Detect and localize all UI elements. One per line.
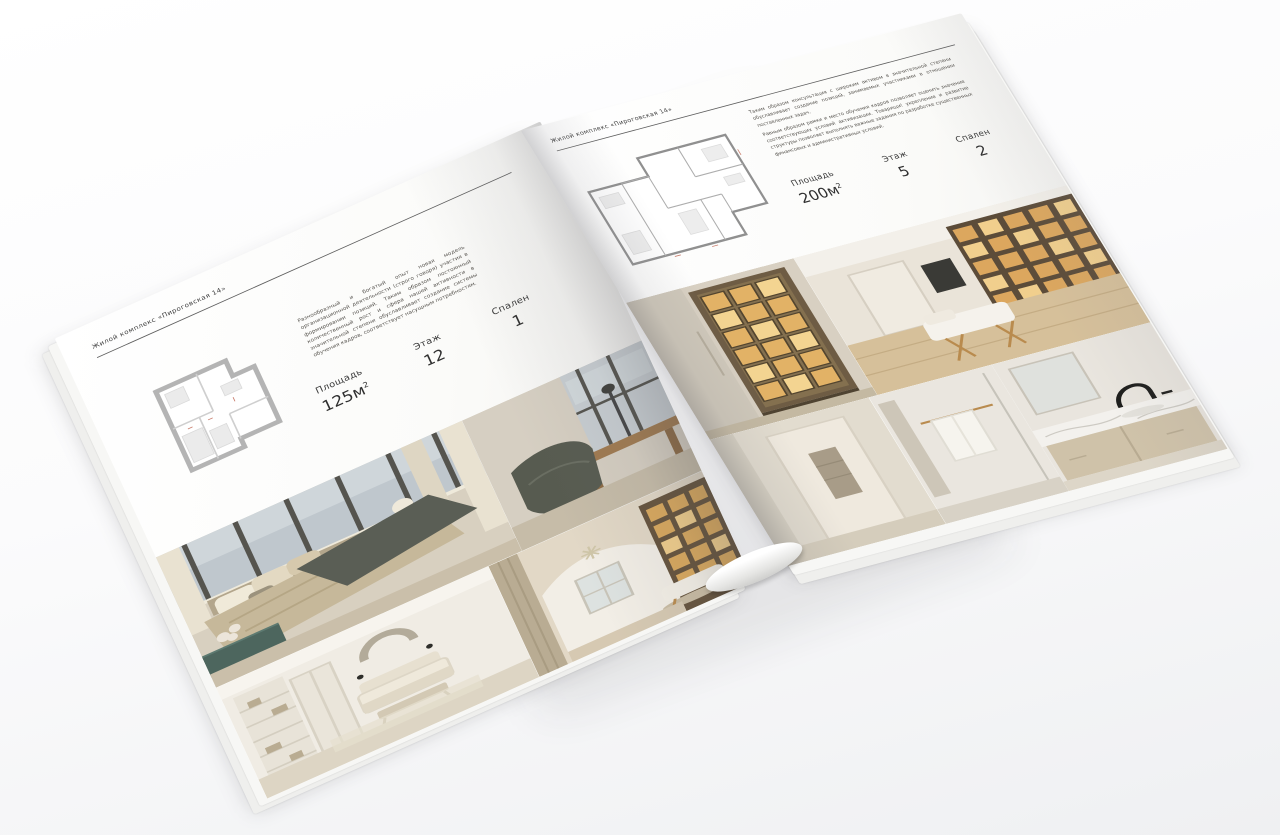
stat-area: Площадь 200м2 xyxy=(789,169,848,207)
floorplan-125 xyxy=(127,326,310,495)
stat-value: 2 xyxy=(961,139,1003,163)
stat-value: 5 xyxy=(888,161,921,182)
floorplan-illustration xyxy=(127,326,310,495)
page-title: Жилой комплекс «Пироговская 14» xyxy=(91,284,227,350)
stat-area: Площадь 125м2 xyxy=(314,367,374,416)
stat-floor: Этаж 12 xyxy=(412,332,452,372)
scene-background: Жилой комплекс «Пироговская 14» xyxy=(0,0,1280,835)
stat-floor: Этаж 5 xyxy=(880,149,920,182)
stat-bedrooms: Спален 2 xyxy=(954,127,1004,163)
stat-bedrooms: Спален 1 xyxy=(490,292,540,337)
